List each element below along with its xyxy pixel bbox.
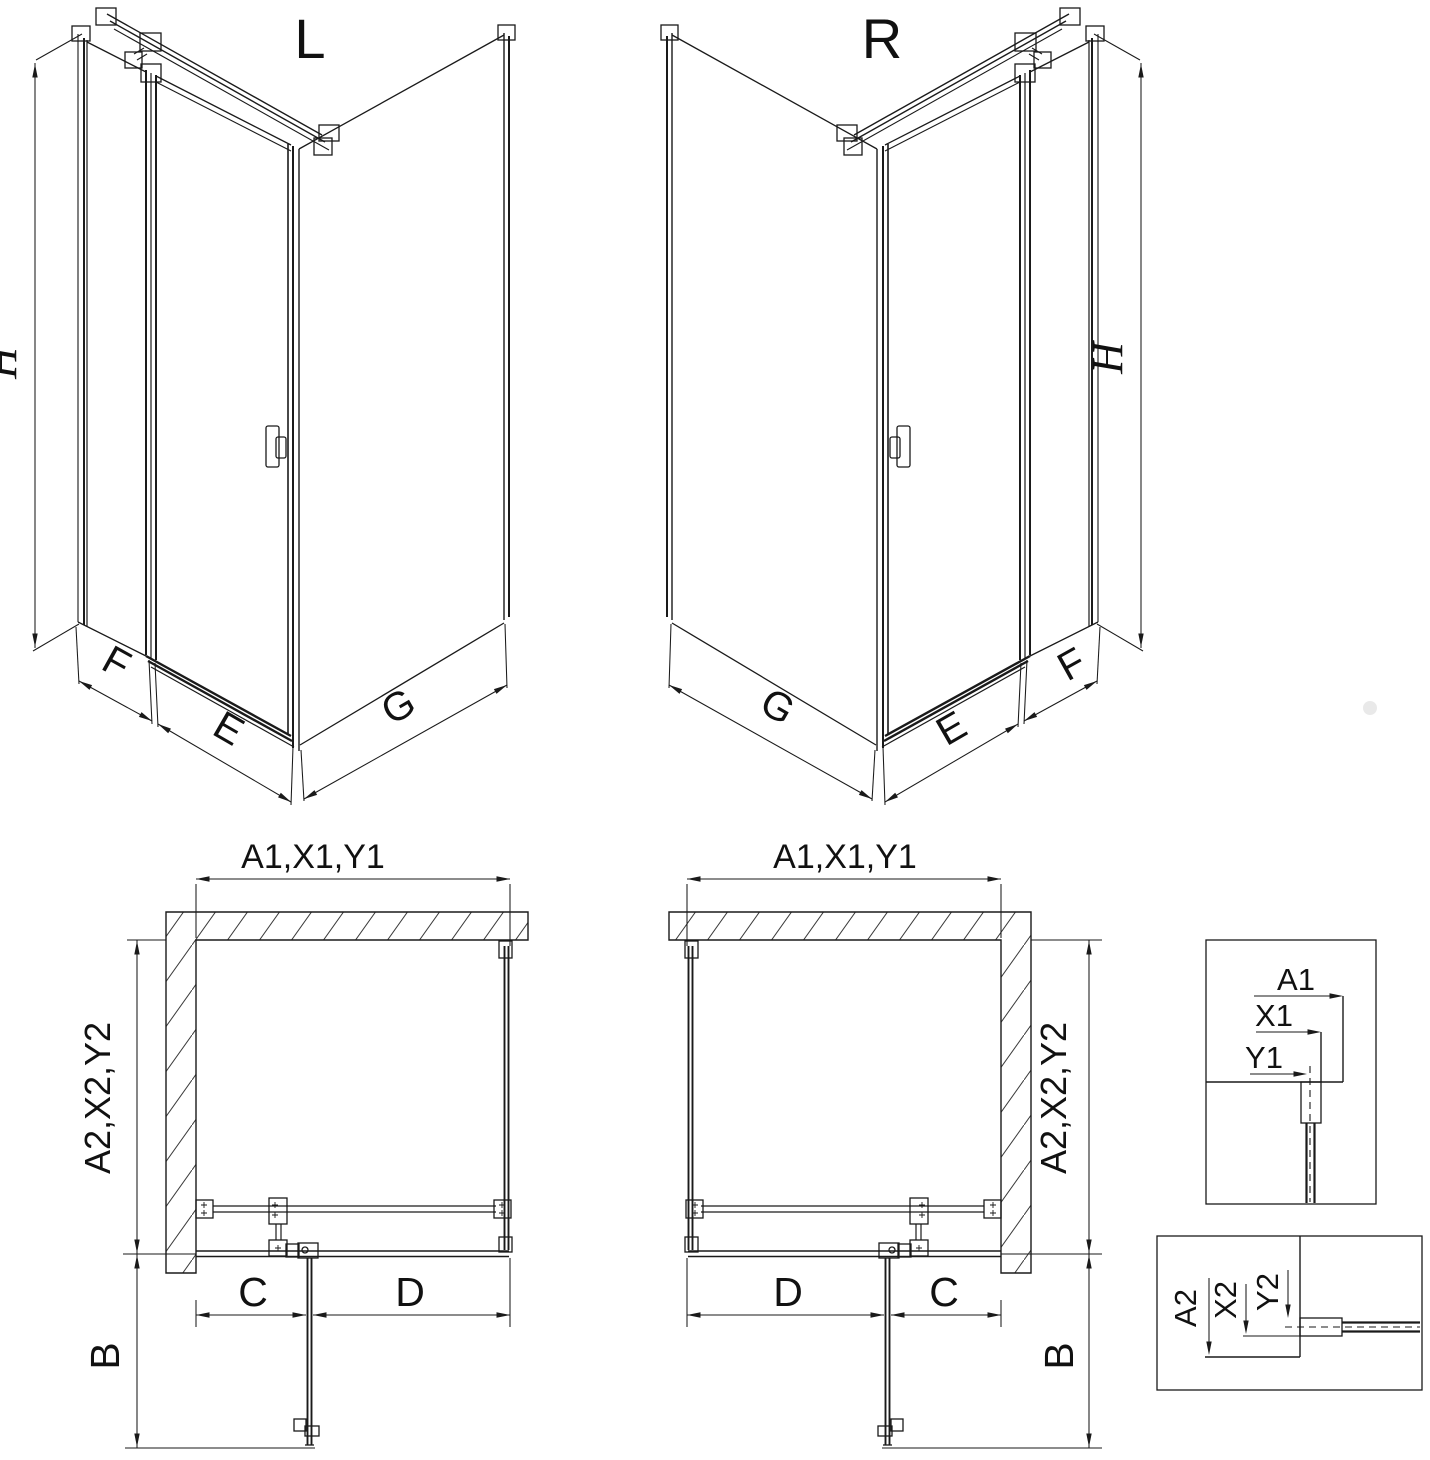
right-g-dim-label: G: [753, 680, 802, 734]
watermark-dot: [1363, 701, 1377, 715]
shower-enclosure-diagram: L R H H F E G G E F A1,X1,Y1 A1,X1,Y1 A2…: [0, 0, 1430, 1460]
right-plan-depth-dims: [882, 940, 1102, 1448]
left-plan-width-label: A1,X1,Y1: [241, 838, 385, 876]
right-e-dim-label: E: [929, 703, 974, 754]
left-plan-wall: [166, 912, 528, 1273]
detail-depth-box: A2 X2 Y2: [1157, 1236, 1422, 1390]
right-plan-d-label: D: [773, 1269, 803, 1315]
left-plan-b-label: B: [82, 1342, 128, 1369]
detail-width-box: A1 X1 Y1: [1206, 940, 1376, 1204]
left-plan-depth-dims: [123, 940, 315, 1448]
right-plan-drawing: [685, 876, 1001, 1445]
right-plan-b-label: B: [1036, 1342, 1082, 1369]
detail-x1-label: X1: [1255, 998, 1293, 1033]
right-height-dim-label: H: [1083, 340, 1132, 375]
left-plan-c-label: C: [238, 1269, 268, 1315]
detail-y1-label: Y1: [1245, 1040, 1283, 1075]
right-f-dim-label: F: [1050, 639, 1093, 689]
left-3d-drawing: [32, 8, 515, 805]
diagram-page: L R H H F E G G E F A1,X1,Y1 A1,X1,Y1 A2…: [0, 0, 1430, 1460]
right-plan-c-label: C: [929, 1269, 959, 1315]
left-plan-drawing: [196, 876, 512, 1445]
left-view-title: L: [294, 7, 325, 70]
detail-a2-label: A2: [1168, 1289, 1203, 1327]
right-plan-wall: [669, 912, 1031, 1273]
detail-x2-label: X2: [1208, 1281, 1243, 1319]
right-plan-depth-label: A2,X2,Y2: [1033, 1022, 1074, 1174]
right-view-title: R: [862, 7, 902, 70]
detail-y2-label: Y2: [1250, 1273, 1285, 1311]
left-f-dim-label: F: [95, 637, 138, 687]
left-plan-d-label: D: [395, 1269, 425, 1315]
right-plan-width-label: A1,X1,Y1: [773, 838, 917, 876]
left-plan-depth-label: A2,X2,Y2: [77, 1022, 118, 1174]
left-height-dim-label: H: [0, 345, 26, 380]
detail-a1-label: A1: [1277, 962, 1315, 997]
left-g-dim-label: G: [374, 680, 423, 734]
